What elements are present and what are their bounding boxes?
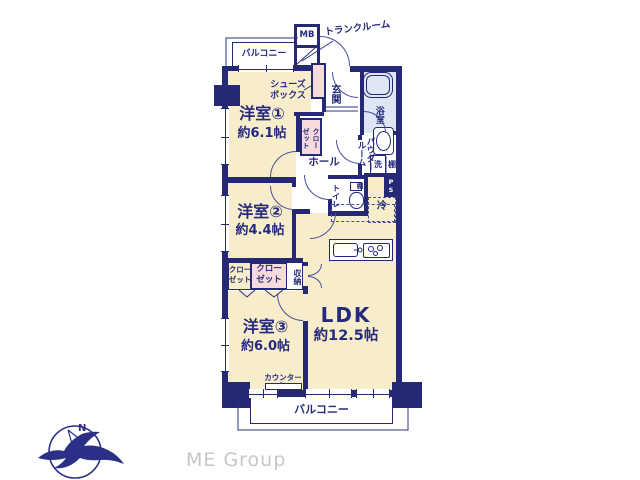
closet-room1-label: クロー ゼット [301,121,321,155]
bathtub-inner [366,75,390,95]
window-ldk-balcony-1 [305,389,352,398]
powder-room-label: パウダー ルーム [356,131,374,177]
meter-box-label: MB [294,30,320,40]
pillar-top-left [214,85,240,106]
ldk-name: LDK [300,303,392,327]
hall-label: ホール [296,156,352,169]
toilet-shelf-label: 棚 [355,183,365,191]
compass-north-label: N [78,423,86,434]
powder-sink-bowl [376,131,391,151]
kitchen-sink [333,243,358,257]
toilet-label: トイレ [331,181,341,211]
washer-label: 洗 [370,160,386,170]
room2-name: 洋室② [226,202,294,221]
room3-size: 約6.0帖 [228,339,303,355]
window-room3-balcony [248,389,278,398]
toilet-door-arc [304,175,329,200]
wall-right [396,68,402,397]
room2-size: 約4.4帖 [226,223,294,239]
balcony-top-label: バルコニー [232,49,296,60]
pillar-bottom-left [222,382,250,408]
window-ldk-balcony-2 [356,389,390,398]
counter-room3 [265,383,302,390]
company-name: ME Group [186,449,286,471]
wall-room1-room2 [222,177,296,183]
burner-3 [373,251,378,256]
floorplan-canvas: バルコニー MB トランクルーム シューズ ボックス 玄関 浴室 洋室① 約6.… [0,0,640,480]
compass-logo: N [30,416,200,480]
storage-label: 収納 [288,266,302,288]
burner-2 [377,245,383,251]
balcony-bottom-label: バルコニー [250,403,393,416]
window-room1-balcony [238,65,294,72]
shoes-box [311,63,326,99]
counter-label: カウンター [259,373,307,382]
pillar-bottom-right [392,382,422,408]
trunk-room-label: トランクルーム [324,17,405,38]
bathroom-label: 浴室 [373,99,384,131]
closet-left-label: クロー ゼット [228,265,252,285]
ldk-size: 約12.5帖 [300,328,392,345]
room3-name: 洋室③ [228,317,303,336]
pipe-space-label: P S [384,178,398,194]
room1-size: 約6.1帖 [228,126,296,142]
mb-trunk-divider [294,45,320,48]
closet-mid-label: クロー ゼット [250,264,288,286]
shoes-box-label: シューズ ボックス [266,80,310,102]
room1-name: 洋室① [228,104,296,123]
refrigerator-label: 冷 [368,201,396,213]
entry-door-arc [320,36,350,66]
entrance-label: 玄関 [328,74,340,114]
wall-hall-top [294,112,324,116]
shelf-label: 棚 [386,160,398,170]
